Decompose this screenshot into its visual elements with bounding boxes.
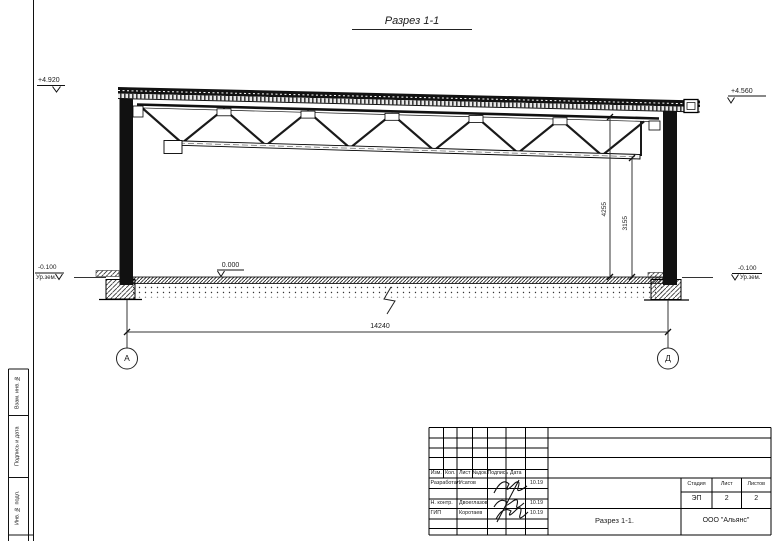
dim-to-truss-top: 4255	[602, 194, 609, 224]
elevation-ground-right: -0.100	[738, 266, 756, 273]
tb-role-developer: Разработал	[431, 481, 460, 486]
tb-doc-name: Разрез 1-1.	[548, 517, 681, 525]
elevation-ground-left: -0.100	[38, 265, 56, 272]
span-dimension	[117, 300, 679, 369]
elevation-floor: 0.000	[217, 262, 244, 269]
signatures	[494, 480, 528, 522]
tb-sheets-value: 2	[742, 495, 772, 502]
section-linework	[0, 0, 773, 541]
tb-header-izm: Изм.	[429, 471, 444, 476]
tb-date-developer: 10.19	[526, 481, 548, 486]
stamp-field-podpis: Подпись и дата	[8, 415, 28, 477]
tb-header-list: Лист	[457, 471, 473, 476]
drawing-sheet: Разрез 1-1 +4.920 +4.560 0.000 -0.100 Ур…	[0, 0, 773, 541]
roof-end-cap	[684, 100, 698, 113]
dim-span: 14240	[352, 323, 408, 330]
tb-stage-value: ЭП	[681, 495, 712, 502]
ground-label-right: Ур.зем.	[740, 275, 760, 281]
tb-name-developer: Усатов	[459, 481, 476, 486]
ground-label-left: Ур.зем.	[36, 275, 56, 281]
drawing-title: Разрез 1-1	[352, 16, 472, 30]
tb-header-ndok: №док.	[473, 471, 488, 476]
tb-header-data: Дата	[506, 471, 526, 476]
tb-header-podpis: Подпись	[488, 471, 507, 476]
tb-role-gip: ГИП	[431, 511, 442, 516]
axis-label-left: А	[116, 348, 138, 369]
tb-name-ncontrol: Двоеглазов	[459, 501, 488, 506]
left-column	[120, 91, 134, 285]
stamp-field-vzam: Взам. инв. №	[8, 369, 28, 415]
elevation-top-left: +4.920	[38, 77, 60, 84]
elevation-top-right: +4.560	[731, 88, 753, 95]
tb-name-gip: Коротаев	[459, 511, 482, 516]
axis-label-right: Д	[657, 348, 679, 369]
tb-header-kol: Кол.	[444, 471, 458, 476]
tb-sheets-label: Листов	[742, 482, 772, 487]
roof	[118, 87, 700, 113]
tb-date-gip: 10.19	[526, 511, 548, 516]
dim-to-truss-bottom: 3155	[623, 208, 630, 238]
tb-sheet-label: Лист	[712, 482, 742, 487]
floor	[74, 271, 713, 315]
tb-company: ООО "Альянс"	[681, 517, 771, 524]
stamp-field-inv: Инв. № подл.	[8, 477, 28, 539]
tb-sheet-value: 2	[712, 495, 742, 502]
tb-date-ncontrol: 10.19	[526, 501, 548, 506]
tb-role-ncontrol: Н. контр.	[431, 501, 453, 506]
right-column	[663, 106, 677, 285]
tb-stage-label: Стадия	[681, 482, 712, 487]
truss	[133, 105, 660, 160]
